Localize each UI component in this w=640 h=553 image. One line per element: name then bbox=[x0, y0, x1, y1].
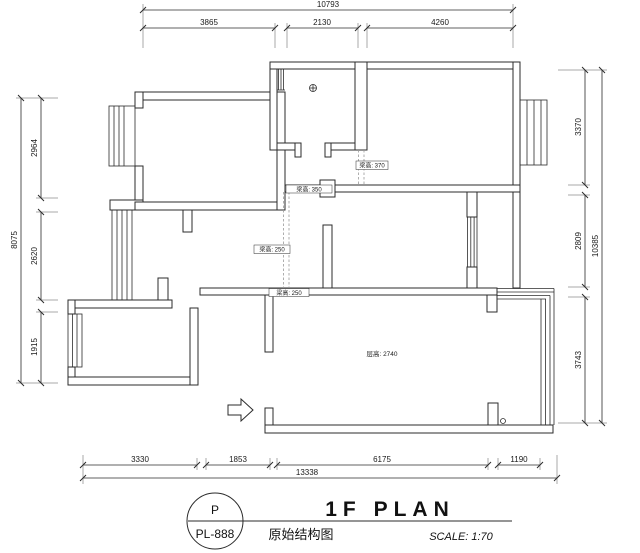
wall-segment bbox=[270, 62, 520, 69]
wall-segment bbox=[183, 210, 192, 232]
wall-segment bbox=[68, 300, 75, 314]
scale-label: SCALE: 1:70 bbox=[429, 531, 493, 543]
door-jamb bbox=[325, 143, 331, 157]
wall-segment bbox=[270, 62, 277, 150]
wall-segment bbox=[265, 425, 553, 433]
wall-segment bbox=[488, 403, 498, 425]
wall-segment bbox=[513, 192, 520, 288]
entry-arrow-icon bbox=[228, 399, 253, 421]
door-jamb bbox=[295, 143, 301, 157]
wall-segment bbox=[135, 92, 143, 108]
dim-top-seg-1: 2130 bbox=[313, 18, 331, 27]
dim-bottom-seg-1: 1853 bbox=[229, 455, 247, 464]
wall-segment bbox=[135, 92, 285, 100]
wall-segment bbox=[355, 62, 367, 150]
floor-drain-icon bbox=[310, 85, 317, 92]
wall-segment bbox=[190, 308, 198, 385]
plan-title: 1F PLAN bbox=[325, 498, 455, 521]
dim-left-seg-0: 2964 bbox=[30, 139, 39, 157]
wall-segment bbox=[265, 295, 273, 352]
dim-left-overall: 8075 bbox=[10, 231, 19, 249]
window-bedroom-left bbox=[109, 106, 135, 166]
wall-segment bbox=[467, 192, 477, 217]
dim-top-seg-2: 4260 bbox=[431, 18, 449, 27]
label-ceiling-height: 层高: 2740 bbox=[366, 349, 397, 358]
wall-segment bbox=[200, 288, 497, 295]
label-beam-250-b: 梁高: 250 bbox=[276, 289, 302, 297]
title-block: P PL-888 1F PLAN 原始结构图 SCALE: 1:70 bbox=[187, 493, 512, 549]
dim-top-overall: 10793 bbox=[317, 0, 340, 9]
label-beam-370: 梁高: 370 bbox=[359, 162, 385, 170]
dim-left-seg-2: 1915 bbox=[30, 338, 39, 356]
drawing-name: 原始结构图 bbox=[268, 527, 333, 542]
window-living-corner bbox=[497, 289, 554, 426]
dim-right-seg-0: 3370 bbox=[574, 118, 583, 136]
label-beam-250-a: 梁高: 250 bbox=[259, 246, 285, 254]
floor-plan-sheet: 10793 3865 2130 4260 8075 2964 2620 1915… bbox=[0, 0, 640, 553]
wall-segment bbox=[158, 278, 168, 300]
window-bedroom-right bbox=[520, 100, 547, 165]
sheet-number: PL-888 bbox=[196, 527, 235, 541]
floor-plan-drawing: 10793 3865 2130 4260 8075 2964 2620 1915… bbox=[0, 0, 640, 553]
dim-right-seg-1: 2809 bbox=[574, 232, 583, 250]
label-beam-350: 梁高: 350 bbox=[296, 185, 322, 193]
window-dining-left bbox=[112, 210, 132, 300]
wall-segment bbox=[68, 300, 172, 308]
dim-bottom-seg-3: 1190 bbox=[510, 455, 528, 464]
column bbox=[487, 295, 497, 312]
dim-bottom-seg-2: 6175 bbox=[373, 455, 391, 464]
walls bbox=[68, 62, 553, 433]
dim-top-seg-0: 3865 bbox=[200, 18, 218, 27]
wall-segment bbox=[135, 202, 285, 210]
sheet-letter: P bbox=[211, 503, 219, 517]
wall-segment bbox=[513, 62, 520, 192]
dim-right-seg-2: 3743 bbox=[574, 351, 583, 369]
window-shaft bbox=[468, 217, 478, 267]
dim-bottom-overall: 13338 bbox=[296, 468, 319, 477]
shaft-hatch-bath bbox=[277, 69, 285, 90]
dim-right-overall: 10385 bbox=[591, 234, 600, 257]
wall-segment bbox=[68, 377, 198, 385]
windows bbox=[68, 69, 554, 425]
dim-bottom-seg-0: 3330 bbox=[131, 455, 149, 464]
dim-left-seg-1: 2620 bbox=[30, 247, 39, 265]
drain-circle-icon bbox=[501, 419, 506, 424]
wall-segment bbox=[323, 225, 332, 288]
wall-segment bbox=[467, 267, 477, 288]
window-balcony-left bbox=[68, 314, 82, 367]
